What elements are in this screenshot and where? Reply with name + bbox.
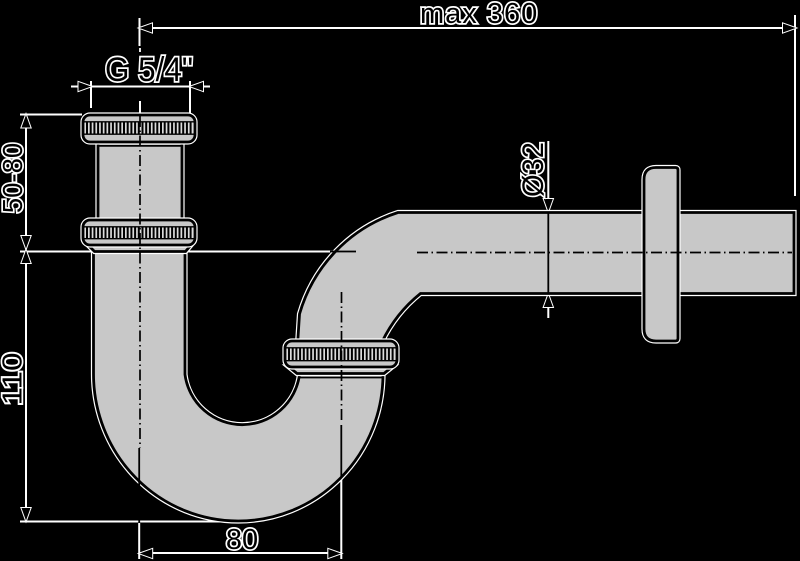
svg-text:110: 110 xyxy=(0,353,28,406)
svg-text:80: 80 xyxy=(226,524,258,556)
svg-text:max 360: max 360 xyxy=(420,0,538,30)
svg-text:G 5/4": G 5/4" xyxy=(105,51,193,89)
svg-text:Ø32: Ø32 xyxy=(517,142,550,197)
svg-text:50-80: 50-80 xyxy=(0,143,28,213)
